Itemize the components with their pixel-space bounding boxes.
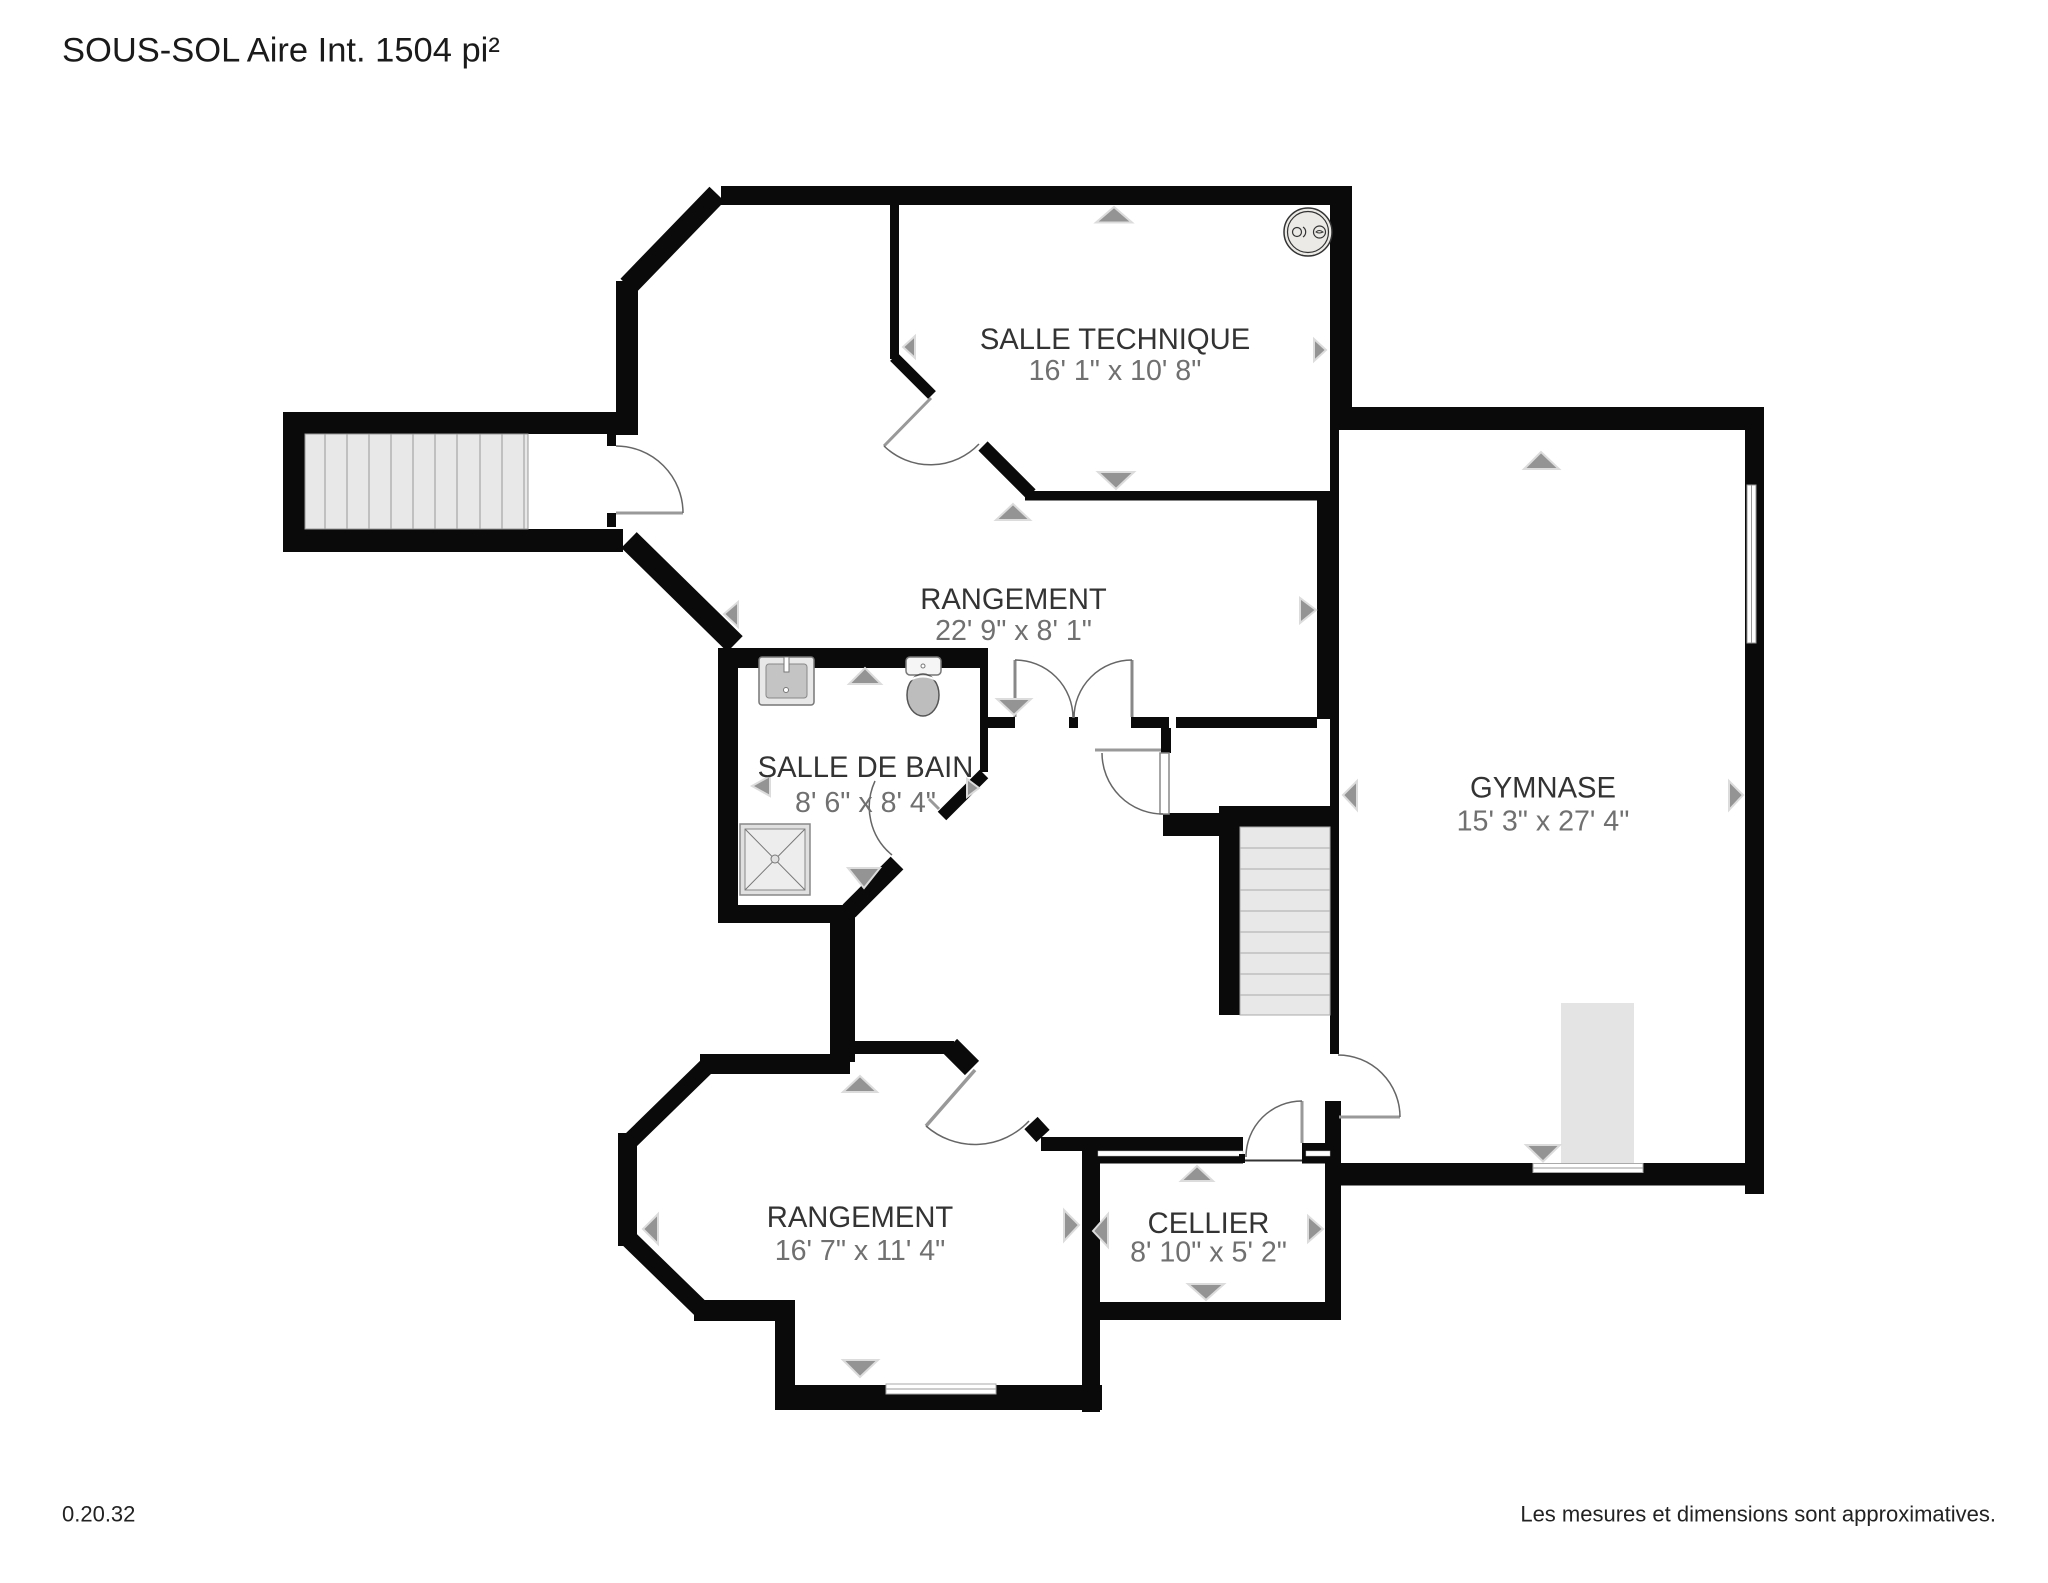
svg-text:16' 1" x 10' 8": 16' 1" x 10' 8": [1029, 355, 1202, 387]
svg-text:GYMNASE: GYMNASE: [1470, 773, 1616, 805]
svg-text:SALLE DE BAIN: SALLE DE BAIN: [758, 752, 974, 784]
svg-text:15' 3" x 27' 4": 15' 3" x 27' 4": [1457, 806, 1630, 838]
svg-text:22' 9" x 8' 1": 22' 9" x 8' 1": [935, 615, 1092, 647]
svg-text:Les mesures et dimensions sont: Les mesures et dimensions sont approxima…: [1520, 1502, 1996, 1527]
svg-text:SALLE TECHNIQUE: SALLE TECHNIQUE: [980, 324, 1250, 356]
svg-text:SOUS-SOL Aire Int. 1504 pi²: SOUS-SOL Aire Int. 1504 pi²: [62, 32, 500, 70]
svg-text:8' 10" x 5' 2": 8' 10" x 5' 2": [1130, 1237, 1287, 1269]
svg-text:CELLIER: CELLIER: [1148, 1208, 1270, 1240]
svg-text:0.20.32: 0.20.32: [62, 1502, 135, 1527]
svg-text:16' 7" x 11' 4": 16' 7" x 11' 4": [775, 1235, 946, 1267]
svg-text:RANGEMENT: RANGEMENT: [920, 584, 1107, 616]
svg-text:8' 6" x 8' 4": 8' 6" x 8' 4": [795, 787, 936, 819]
svg-text:RANGEMENT: RANGEMENT: [767, 1202, 954, 1234]
